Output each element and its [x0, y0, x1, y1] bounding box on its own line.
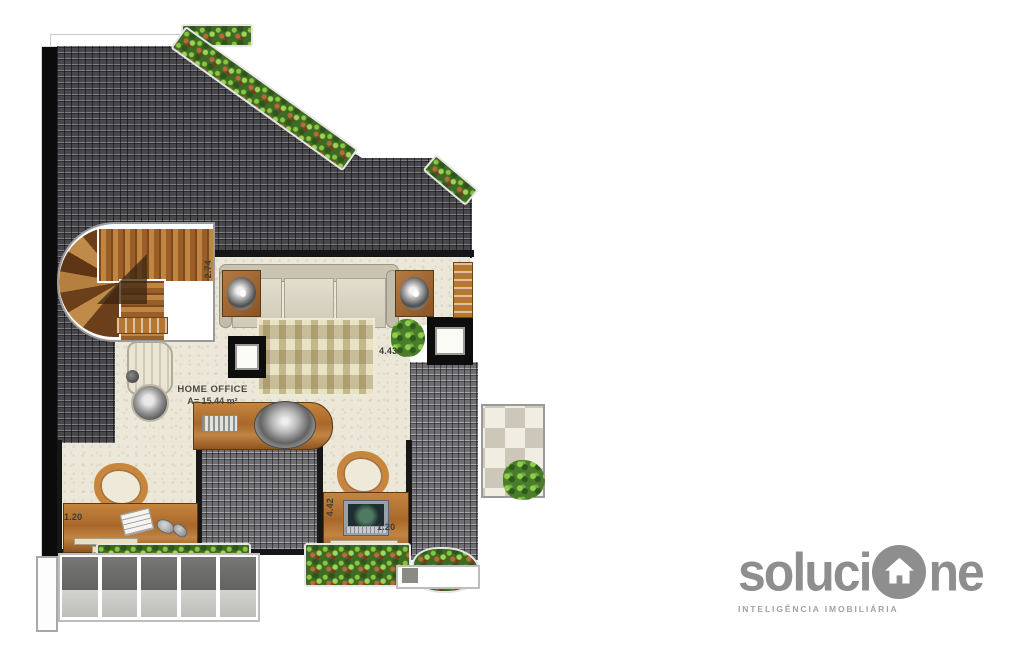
- room-area: A= 15.44 m²: [150, 396, 275, 406]
- room-name: HOME OFFICE: [150, 384, 275, 395]
- dimension-living: 4.43: [379, 346, 397, 356]
- lower-gray-box: [402, 568, 418, 583]
- house-icon: [881, 555, 917, 589]
- roof-right-column: [410, 362, 478, 560]
- louver-panel: [102, 557, 138, 618]
- skylight-left: [228, 336, 266, 378]
- brand-logo: soluci ne INTELIGÊNCIA IMOBILIÁRIA: [738, 545, 983, 614]
- speaker-right: [395, 270, 434, 317]
- louver-panel: [141, 557, 177, 618]
- dimension-stair: 2.74: [203, 260, 213, 278]
- speaker-left: [222, 270, 261, 317]
- floor-lamp: [126, 370, 139, 383]
- brand-tagline: INTELIGÊNCIA IMOBILIÁRIA: [738, 604, 983, 614]
- room-label: HOME OFFICE A= 15.44 m²: [150, 384, 275, 406]
- door-right: [453, 262, 473, 318]
- brand-word-end: ne: [928, 545, 982, 599]
- dimension-left-desk: 1.20: [64, 512, 82, 522]
- louver-frame: [58, 553, 260, 622]
- skylight-right: [427, 317, 473, 365]
- counter-keyboard: [202, 415, 238, 432]
- house-in-circle-icon: [872, 545, 926, 599]
- brand-logo-row: soluci ne: [738, 545, 983, 599]
- stair-flight-top: [97, 227, 215, 283]
- louver-panel: [181, 557, 217, 618]
- louver-panel: [220, 557, 256, 618]
- wall-alcove-1: [57, 440, 62, 553]
- louver-panel: [62, 557, 98, 618]
- floor-plan-page: 2.74 HOME OFFICE A= 15.44 m² 4.43 1.20: [0, 0, 1024, 651]
- counter-basin: [254, 401, 316, 449]
- lower-wall-strip: [36, 556, 58, 632]
- brand-word-start: soluci: [738, 545, 870, 599]
- dimension-right-desk: 1.20: [377, 522, 395, 532]
- planter-bottom-right: [304, 543, 411, 587]
- left-wall-bar: [41, 46, 58, 557]
- dimension-right-desk-depth: 4.42: [325, 498, 335, 516]
- roof-center-lower: [200, 440, 322, 555]
- terrace-plant: [503, 460, 545, 500]
- door-left: [116, 317, 168, 334]
